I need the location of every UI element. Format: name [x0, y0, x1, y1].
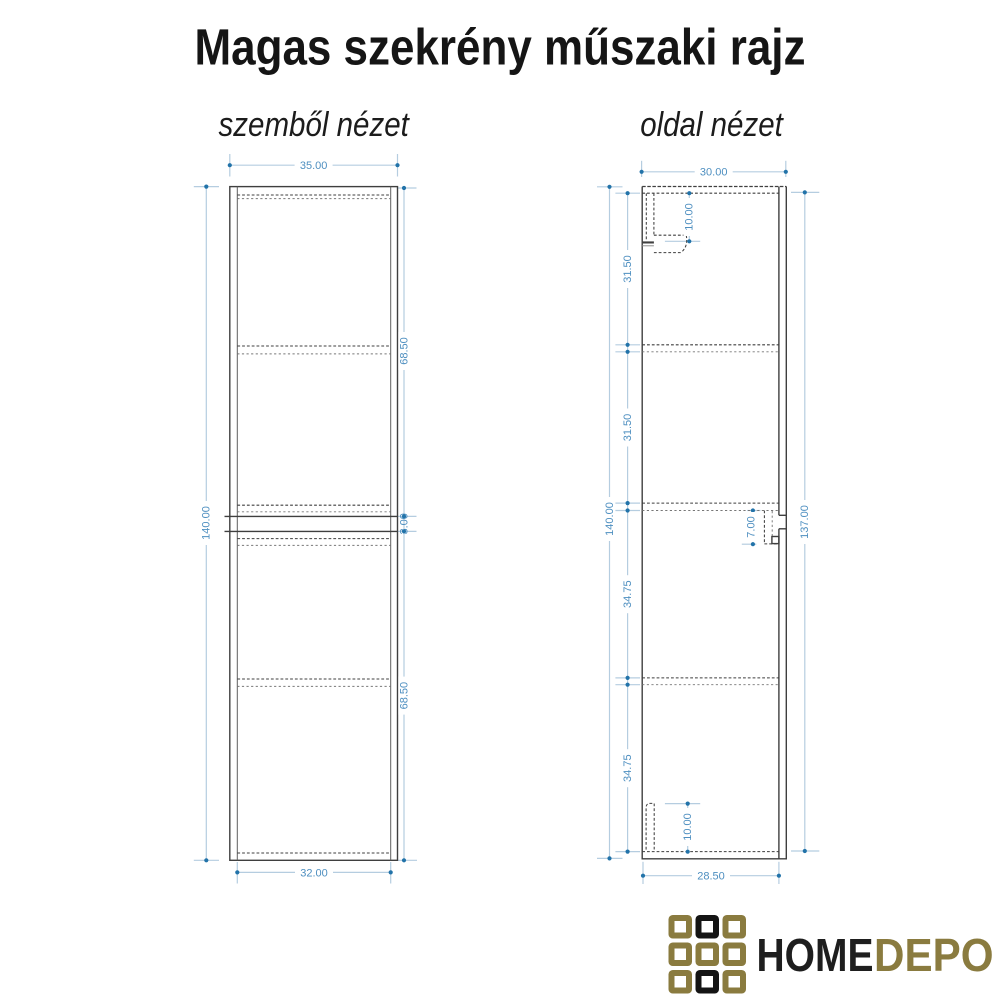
svg-text:140.00: 140.00: [604, 502, 616, 536]
svg-text:140.00: 140.00: [201, 506, 213, 540]
svg-text:szemből nézet: szemből nézet: [219, 106, 411, 144]
svg-text:Magas szekrény műszaki rajz: Magas szekrény műszaki rajz: [195, 19, 806, 76]
svg-text:68.50: 68.50: [399, 337, 411, 365]
svg-text:31.50: 31.50: [622, 414, 634, 442]
svg-text:10.00: 10.00: [684, 203, 696, 231]
svg-text:30.00: 30.00: [700, 166, 728, 178]
svg-text:7.00: 7.00: [746, 516, 758, 537]
svg-text:28.50: 28.50: [697, 870, 725, 882]
svg-text:10.00: 10.00: [682, 813, 694, 841]
svg-text:DEPO: DEPO: [874, 929, 994, 981]
svg-text:35.00: 35.00: [300, 160, 328, 172]
svg-text:68.50: 68.50: [399, 682, 411, 710]
svg-text:HOME: HOME: [757, 929, 874, 981]
svg-text:137.00: 137.00: [799, 505, 811, 539]
svg-text:31.50: 31.50: [622, 255, 634, 283]
svg-text:34.75: 34.75: [622, 580, 634, 608]
svg-text:32.00: 32.00: [300, 867, 328, 879]
svg-text:34.75: 34.75: [622, 754, 634, 782]
svg-text:oldal nézet: oldal nézet: [640, 106, 784, 144]
